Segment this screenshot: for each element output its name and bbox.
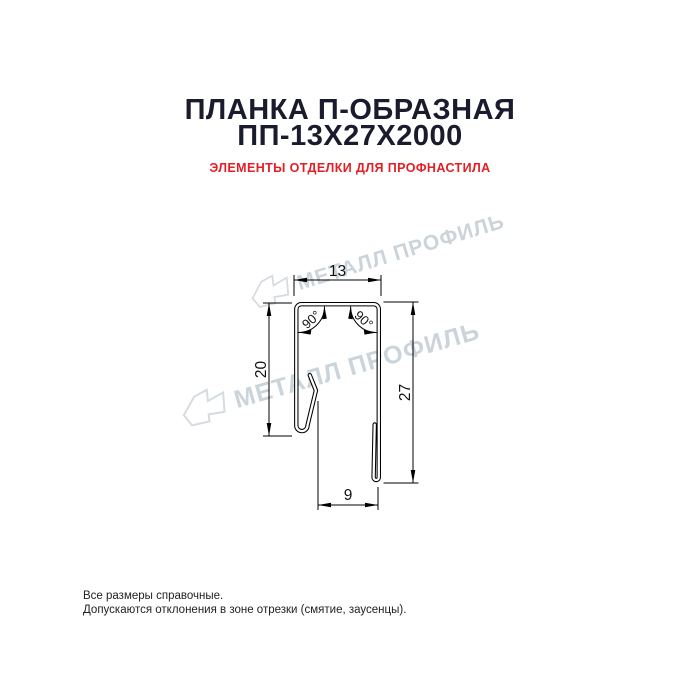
dimension-right-height: 27 [384, 302, 419, 483]
footer-notes: Все размеры справочные. Допускаются откл… [83, 589, 406, 617]
dimension-label-left-height: 20 [253, 361, 270, 379]
angle-label-left: 90° [299, 307, 324, 331]
angle-label-right: 90° [352, 307, 377, 331]
footer-note-line2: Допускаются отклонения в зоне отрезки (с… [83, 603, 406, 617]
dimension-left-height: 20 [253, 303, 292, 436]
dimension-label-right-height: 27 [397, 384, 414, 401]
dimension-label-bottom-width: 9 [344, 487, 353, 504]
angle-annotation-right: 90° [348, 307, 376, 335]
dimension-label-top-width: 13 [329, 263, 346, 280]
product-drawing-page: ПЛАНКА П-ОБРАЗНАЯ ПП-13Х27Х2000 ЭЛЕМЕНТЫ… [0, 0, 700, 700]
angle-annotation-left: 90° [299, 307, 327, 335]
dimension-top-width: 13 [294, 263, 381, 296]
dimension-bottom-width: 9 [318, 401, 378, 510]
footer-note-line1: Все размеры справочные. [83, 589, 406, 603]
